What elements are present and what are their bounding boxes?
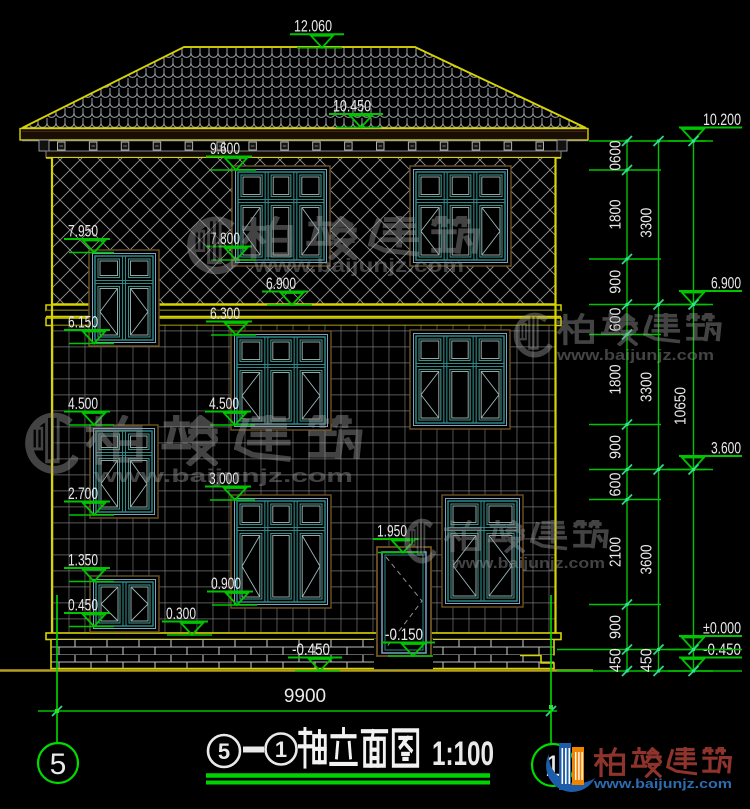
svg-text:2.700: 2.700	[68, 485, 98, 503]
svg-text:10650: 10650	[673, 387, 690, 425]
svg-text:1800: 1800	[608, 364, 625, 394]
svg-text:10.200: 10.200	[703, 111, 741, 129]
svg-text:5: 5	[50, 748, 67, 781]
svg-text:www.baijunjz.com: www.baijunjz.com	[253, 256, 464, 277]
svg-text:www.baijunjz.com: www.baijunjz.com	[451, 556, 605, 572]
svg-text:www.baijunjz.com: www.baijunjz.com	[593, 777, 732, 791]
svg-text:0600: 0600	[608, 140, 625, 170]
svg-text:1.950: 1.950	[377, 523, 407, 541]
svg-text:www.baijunjz.com: www.baijunjz.com	[92, 465, 353, 486]
svg-text:2100: 2100	[608, 537, 625, 567]
svg-text:-0.150: -0.150	[385, 626, 423, 644]
svg-text:4.500: 4.500	[209, 395, 239, 413]
svg-text:1: 1	[275, 737, 287, 762]
svg-text:3300: 3300	[639, 372, 656, 402]
svg-text:3300: 3300	[639, 207, 656, 237]
svg-text:±0.000: ±0.000	[703, 620, 741, 638]
svg-text:9.600: 9.600	[210, 140, 240, 158]
svg-text:3600: 3600	[639, 544, 656, 574]
svg-text:6.900: 6.900	[711, 275, 741, 293]
svg-text:1.350: 1.350	[68, 552, 98, 570]
svg-text:10.450: 10.450	[333, 98, 371, 116]
svg-text:450: 450	[608, 648, 625, 672]
svg-text:7.950: 7.950	[68, 223, 98, 241]
svg-text:0.300: 0.300	[166, 605, 196, 623]
svg-text:6.900: 6.900	[266, 275, 296, 293]
svg-text:6.300: 6.300	[210, 305, 240, 323]
svg-text:900: 900	[608, 615, 625, 639]
svg-text:0.900: 0.900	[211, 575, 241, 593]
svg-text:-0.450: -0.450	[292, 641, 330, 659]
svg-text:4.500: 4.500	[68, 395, 98, 413]
svg-text:5: 5	[218, 739, 230, 764]
svg-text:6.150: 6.150	[68, 314, 98, 332]
svg-text:0.450: 0.450	[68, 597, 98, 615]
svg-text:900: 900	[608, 269, 625, 293]
svg-text:12.060: 12.060	[294, 18, 332, 36]
svg-text:1800: 1800	[608, 199, 625, 229]
svg-text:600: 600	[608, 472, 625, 496]
svg-text:900: 900	[608, 435, 625, 459]
svg-text:1:100: 1:100	[432, 735, 494, 773]
svg-text:9900: 9900	[284, 686, 326, 707]
svg-text:3.600: 3.600	[711, 440, 741, 458]
svg-text:www.baijunjz.com: www.baijunjz.com	[556, 348, 714, 364]
svg-text:450: 450	[639, 648, 656, 672]
